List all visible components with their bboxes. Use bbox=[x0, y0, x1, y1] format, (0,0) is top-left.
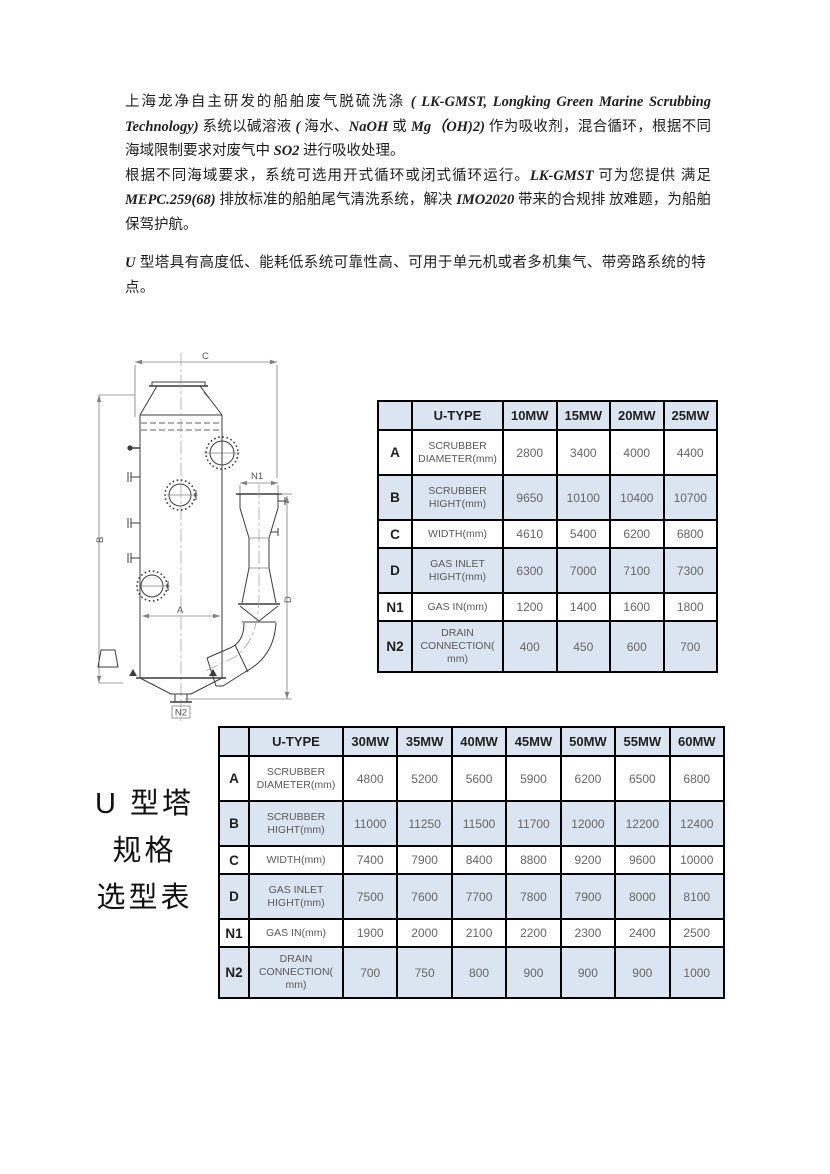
label-line: GAS IN(mm) bbox=[250, 927, 342, 940]
row-label-cell: GAS IN(mm) bbox=[412, 593, 503, 621]
spec-row-B: BSCRUBBERHIGHT(mm)9650101001040010700 bbox=[378, 475, 717, 520]
value-cell: 12400 bbox=[670, 801, 724, 846]
spec-table-30-60mw: U-TYPE30MW35MW40MW45MW50MW55MW60MWASCRUB… bbox=[218, 726, 725, 999]
value-cell: 8800 bbox=[506, 846, 560, 874]
label-line: WIDTH(mm) bbox=[413, 528, 502, 541]
power-header-cell: 30MW bbox=[343, 727, 397, 756]
dim-label-n2: N2 bbox=[175, 708, 187, 719]
spec-row-C: CWIDTH(mm)74007900840088009200960010000 bbox=[219, 846, 724, 874]
value-cell: 11700 bbox=[506, 801, 560, 846]
label-line: SCRUBBER bbox=[413, 440, 502, 453]
row-key-cell: D bbox=[219, 874, 249, 919]
value-cell: 1900 bbox=[343, 919, 397, 947]
text-run: MEPC.259(68) bbox=[125, 192, 219, 208]
row-label-cell: SCRUBBERDIAMETER(mm) bbox=[412, 430, 503, 475]
value-cell: 12000 bbox=[561, 801, 615, 846]
power-header-cell: 20MW bbox=[610, 401, 664, 430]
value-cell: 7600 bbox=[397, 874, 451, 919]
power-header-cell: 35MW bbox=[397, 727, 451, 756]
label-line: WIDTH(mm) bbox=[250, 854, 342, 867]
text-run: NaOH bbox=[349, 119, 392, 135]
value-cell: 7400 bbox=[343, 846, 397, 874]
power-header-cell: 60MW bbox=[670, 727, 724, 756]
dimension-d: D bbox=[185, 494, 294, 699]
value-cell: 1600 bbox=[610, 593, 664, 621]
selection-table-caption: U 型塔规格选型表 bbox=[72, 781, 217, 922]
value-cell: 900 bbox=[561, 947, 615, 998]
row-key-cell: A bbox=[378, 430, 412, 475]
label-line: SCRUBBER bbox=[413, 485, 502, 498]
value-cell: 6800 bbox=[670, 756, 724, 801]
corner-cell bbox=[378, 401, 412, 430]
label-line: HIGHT(mm) bbox=[250, 897, 342, 910]
power-header-cell: 10MW bbox=[503, 401, 557, 430]
value-cell: 10400 bbox=[610, 475, 664, 520]
value-cell: 2300 bbox=[561, 919, 615, 947]
nozzle-stub bbox=[128, 553, 140, 563]
text-run: ( bbox=[295, 119, 304, 135]
value-cell: 8100 bbox=[670, 874, 724, 919]
row-key-cell: C bbox=[219, 846, 249, 874]
value-cell: 11250 bbox=[397, 801, 451, 846]
label-line: DRAIN bbox=[250, 953, 342, 966]
scrubber-tower-drawing: C B bbox=[95, 345, 305, 723]
text-run: 进行吸收处理。 bbox=[303, 143, 405, 159]
value-cell: 1000 bbox=[670, 947, 724, 998]
value-cell: 900 bbox=[615, 947, 669, 998]
spec-row-N2: N2DRAINCONNECTION(mm)400450600700 bbox=[378, 621, 717, 672]
power-header-cell: 45MW bbox=[506, 727, 560, 756]
power-header-cell: 15MW bbox=[557, 401, 611, 430]
value-cell: 5600 bbox=[452, 756, 506, 801]
paragraph-operation-modes: 根据不同海域要求，系统可选用开式循环或闭式循环运行。LK-GMST 可为您提供 … bbox=[125, 164, 711, 238]
row-label-cell: SCRUBBERHIGHT(mm) bbox=[249, 801, 343, 846]
caption-line: U 型塔 bbox=[72, 781, 217, 828]
value-cell: 2400 bbox=[615, 919, 669, 947]
utype-header-cell: U-TYPE bbox=[249, 727, 343, 756]
value-cell: 400 bbox=[503, 621, 557, 672]
value-cell: 4400 bbox=[664, 430, 718, 475]
dim-label-n1: N1 bbox=[251, 471, 263, 482]
dim-label-c: C bbox=[202, 351, 209, 362]
document-page: 上海龙净自主研发的船舶废气脱硫洗涤 ( LK-GMST, Longking Gr… bbox=[0, 0, 830, 1174]
value-cell: 800 bbox=[452, 947, 506, 998]
caption-line: 规格 bbox=[72, 828, 217, 875]
label-line: HIGHT(mm) bbox=[413, 571, 502, 584]
row-key-cell: A bbox=[219, 756, 249, 801]
label-line: mm) bbox=[413, 653, 502, 666]
gas-inlet-duct bbox=[203, 485, 285, 686]
tower-outline bbox=[98, 353, 240, 705]
power-header-cell: 40MW bbox=[452, 727, 506, 756]
value-cell: 700 bbox=[343, 947, 397, 998]
value-cell: 5200 bbox=[397, 756, 451, 801]
value-cell: 9650 bbox=[503, 475, 557, 520]
value-cell: 6500 bbox=[615, 756, 669, 801]
label-line: SCRUBBER bbox=[250, 811, 342, 824]
spec-row-D: DGAS INLETHIGHT(mm)750076007700780079008… bbox=[219, 874, 724, 919]
spec-row-D: DGAS INLETHIGHT(mm)6300700071007300 bbox=[378, 548, 717, 593]
value-cell: 5400 bbox=[557, 520, 611, 548]
value-cell: 6300 bbox=[503, 548, 557, 593]
value-cell: 7900 bbox=[561, 874, 615, 919]
label-line: GAS IN(mm) bbox=[413, 601, 502, 614]
row-label-cell: GAS INLETHIGHT(mm) bbox=[412, 548, 503, 593]
dim-label-b: B bbox=[95, 537, 106, 543]
row-key-cell: N1 bbox=[378, 593, 412, 621]
value-cell: 7100 bbox=[610, 548, 664, 593]
intro-text-block: 上海龙净自主研发的船舶废气脱硫洗涤 ( LK-GMST, Longking Gr… bbox=[125, 90, 711, 300]
spec-row-A: ASCRUBBERDIAMETER(mm)2800340040004400 bbox=[378, 430, 717, 475]
value-cell: 4610 bbox=[503, 520, 557, 548]
corner-cell bbox=[219, 727, 249, 756]
value-cell: 7900 bbox=[397, 846, 451, 874]
value-cell: 7700 bbox=[452, 874, 506, 919]
row-key-cell: N1 bbox=[219, 919, 249, 947]
value-cell: 10000 bbox=[670, 846, 724, 874]
value-cell: 2000 bbox=[397, 919, 451, 947]
value-cell: 11500 bbox=[452, 801, 506, 846]
value-cell: 6200 bbox=[610, 520, 664, 548]
spec-table-10-25mw: U-TYPE10MW15MW20MW25MWASCRUBBERDIAMETER(… bbox=[377, 400, 718, 673]
text-run: 根据不同海域要求，系统可选用开式循环或闭式循环运行。 bbox=[125, 168, 530, 184]
caption-line: 选型表 bbox=[72, 875, 217, 922]
dim-label-d: D bbox=[283, 596, 294, 603]
text-run: 可为您提供 满足 bbox=[598, 168, 711, 184]
value-cell: 12200 bbox=[615, 801, 669, 846]
row-label-cell: SCRUBBERDIAMETER(mm) bbox=[249, 756, 343, 801]
value-cell: 7300 bbox=[664, 548, 718, 593]
value-cell: 900 bbox=[506, 947, 560, 998]
paragraph-u-tower-features: U 型塔具有高度低、能耗低系统可靠性高、可用于单元机或者多机集气、带旁路系统的特… bbox=[125, 251, 711, 300]
value-cell: 6800 bbox=[664, 520, 718, 548]
label-line: SCRUBBER bbox=[250, 766, 342, 779]
row-key-cell: D bbox=[378, 548, 412, 593]
label-line: HIGHT(mm) bbox=[413, 498, 502, 511]
value-cell: 10700 bbox=[664, 475, 718, 520]
value-cell: 2800 bbox=[503, 430, 557, 475]
table-header-row: U-TYPE30MW35MW40MW45MW50MW55MW60MW bbox=[219, 727, 724, 756]
value-cell: 8000 bbox=[615, 874, 669, 919]
spec-row-N1: N1GAS IN(mm)1200140016001800 bbox=[378, 593, 717, 621]
value-cell: 2100 bbox=[452, 919, 506, 947]
label-line: GAS INLET bbox=[250, 884, 342, 897]
value-cell: 750 bbox=[397, 947, 451, 998]
dimension-a: A bbox=[142, 605, 220, 618]
value-cell: 7000 bbox=[557, 548, 611, 593]
value-cell: 7800 bbox=[506, 874, 560, 919]
text-run: IMO2020 bbox=[456, 192, 518, 208]
value-cell: 4800 bbox=[343, 756, 397, 801]
text-run: 排放标准的船舶尾气清洗系统，解决 bbox=[219, 192, 456, 208]
label-line: DIAMETER(mm) bbox=[250, 779, 342, 792]
manhole bbox=[165, 480, 198, 510]
nozzle-stub bbox=[128, 472, 140, 482]
row-label-cell: SCRUBBERHIGHT(mm) bbox=[412, 475, 503, 520]
row-label-cell: GAS INLETHIGHT(mm) bbox=[249, 874, 343, 919]
row-label-cell: WIDTH(mm) bbox=[249, 846, 343, 874]
row-label-cell: GAS IN(mm) bbox=[249, 919, 343, 947]
value-cell: 3400 bbox=[557, 430, 611, 475]
manhole bbox=[137, 571, 170, 601]
dimension-n2: N2 bbox=[172, 702, 190, 721]
spec-row-C: CWIDTH(mm)4610540062006800 bbox=[378, 520, 717, 548]
label-line: CONNECTION( bbox=[250, 966, 342, 979]
spec-row-N2: N2DRAINCONNECTION(mm)7007508009009009001… bbox=[219, 947, 724, 998]
row-key-cell: B bbox=[219, 801, 249, 846]
label-line: DIAMETER(mm) bbox=[413, 453, 502, 466]
text-run: 系统以碱溶液 bbox=[203, 119, 296, 135]
row-label-cell: DRAINCONNECTION(mm) bbox=[249, 947, 343, 998]
row-label-cell: WIDTH(mm) bbox=[412, 520, 503, 548]
text-run: 型塔具有高度低、能耗低系统可靠性高、可用于单元机或者多机集气、带旁路系统的特点。 bbox=[125, 255, 706, 296]
value-cell: 4000 bbox=[610, 430, 664, 475]
text-run: Mg（OH)2) bbox=[411, 119, 489, 135]
value-cell: 7500 bbox=[343, 874, 397, 919]
power-header-cell: 50MW bbox=[561, 727, 615, 756]
row-key-cell: B bbox=[378, 475, 412, 520]
spec-row-B: BSCRUBBERHIGHT(mm)1100011250115001170012… bbox=[219, 801, 724, 846]
spec-row-N1: N1GAS IN(mm)1900200021002200230024002500 bbox=[219, 919, 724, 947]
value-cell: 5900 bbox=[506, 756, 560, 801]
label-line: GAS INLET bbox=[413, 558, 502, 571]
value-cell: 9600 bbox=[615, 846, 669, 874]
value-cell: 450 bbox=[557, 621, 611, 672]
row-label-cell: DRAINCONNECTION(mm) bbox=[412, 621, 503, 672]
label-line: mm) bbox=[250, 979, 342, 992]
value-cell: 1400 bbox=[557, 593, 611, 621]
text-run: U bbox=[125, 255, 140, 271]
utype-header-cell: U-TYPE bbox=[412, 401, 503, 430]
value-cell: 2200 bbox=[506, 919, 560, 947]
value-cell: 1800 bbox=[664, 593, 718, 621]
paragraph-system-intro: 上海龙净自主研发的船舶废气脱硫洗涤 ( LK-GMST, Longking Gr… bbox=[125, 90, 711, 164]
power-header-cell: 55MW bbox=[615, 727, 669, 756]
table-header-row: U-TYPE10MW15MW20MW25MW bbox=[378, 401, 717, 430]
text-run: 或 bbox=[392, 119, 411, 135]
text-run: 上海龙净自主研发的船舶废气脱硫洗涤 bbox=[125, 94, 411, 110]
value-cell: 600 bbox=[610, 621, 664, 672]
nozzle-stub bbox=[128, 518, 140, 528]
power-header-cell: 25MW bbox=[664, 401, 718, 430]
value-cell: 10100 bbox=[557, 475, 611, 520]
value-cell: 6200 bbox=[561, 756, 615, 801]
value-cell: 8400 bbox=[452, 846, 506, 874]
value-cell: 2500 bbox=[670, 919, 724, 947]
dim-label-a: A bbox=[177, 605, 184, 616]
text-run: LK-GMST bbox=[530, 168, 598, 184]
spec-row-A: ASCRUBBERDIAMETER(mm)4800520056005900620… bbox=[219, 756, 724, 801]
row-key-cell: C bbox=[378, 520, 412, 548]
row-key-cell: N2 bbox=[219, 947, 249, 998]
value-cell: 9200 bbox=[561, 846, 615, 874]
value-cell: 11000 bbox=[343, 801, 397, 846]
value-cell: 700 bbox=[664, 621, 718, 672]
label-line: CONNECTION( bbox=[413, 640, 502, 653]
text-run: SO2 bbox=[274, 143, 303, 159]
label-line: HIGHT(mm) bbox=[250, 824, 342, 837]
text-run: 海水、 bbox=[304, 119, 349, 135]
row-key-cell: N2 bbox=[378, 621, 412, 672]
label-line: DRAIN bbox=[413, 627, 502, 640]
dimension-b: B bbox=[95, 395, 135, 683]
value-cell: 1200 bbox=[503, 593, 557, 621]
